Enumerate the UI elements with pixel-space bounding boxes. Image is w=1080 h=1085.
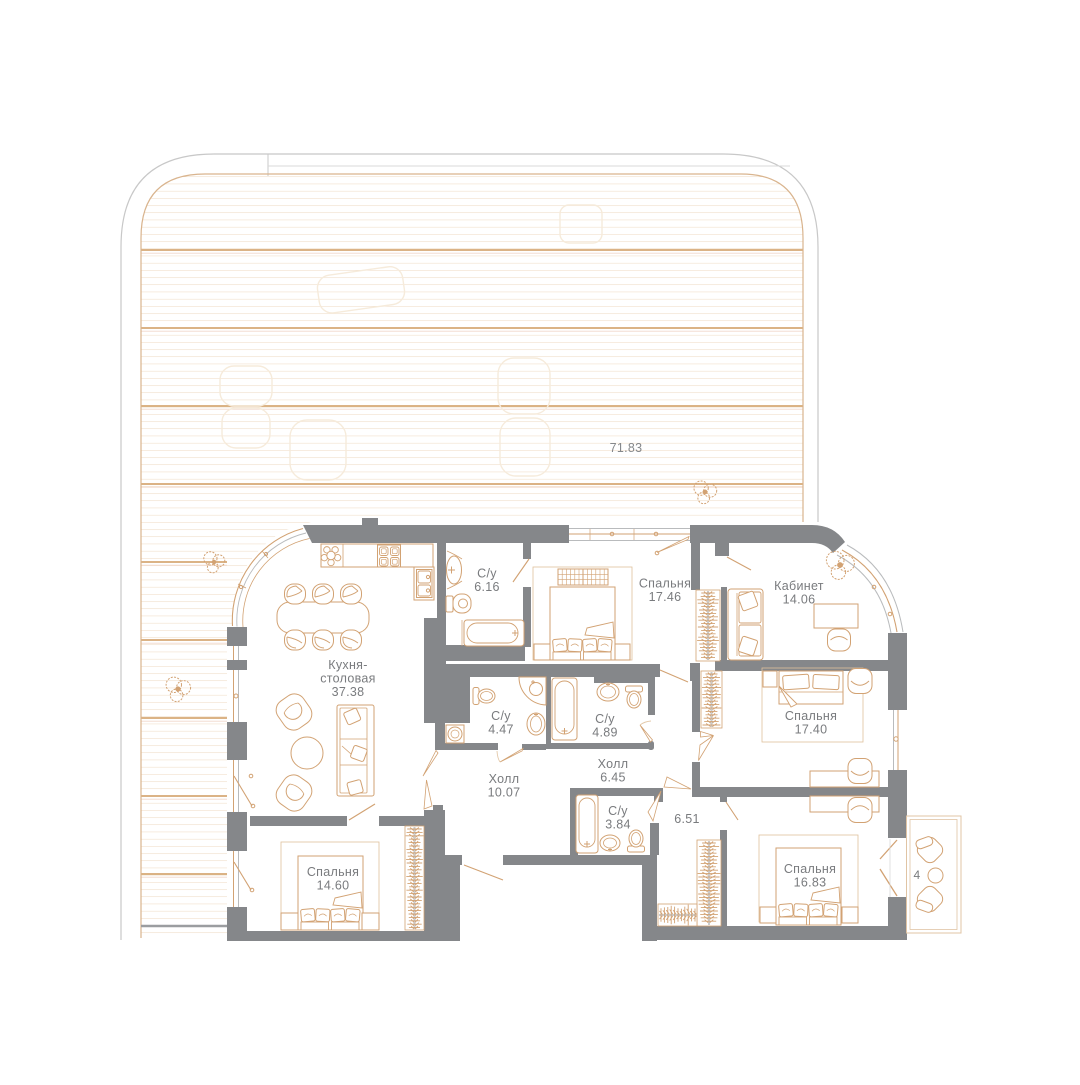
svg-text:Холл: Холл — [598, 757, 629, 771]
svg-text:Спальня: Спальня — [307, 865, 359, 879]
svg-text:10.07: 10.07 — [488, 786, 521, 800]
svg-text:4.89: 4.89 — [592, 726, 618, 740]
svg-text:столовая: столовая — [320, 672, 376, 686]
svg-text:37.38: 37.38 — [332, 685, 365, 699]
svg-text:Спальня: Спальня — [784, 862, 836, 876]
svg-text:Кабинет: Кабинет — [774, 579, 824, 593]
svg-text:Холл: Холл — [489, 772, 520, 786]
svg-text:4.47: 4.47 — [488, 723, 514, 737]
svg-text:С/у: С/у — [608, 804, 628, 818]
svg-text:6.51: 6.51 — [674, 812, 700, 826]
svg-text:16.83: 16.83 — [794, 876, 827, 890]
svg-text:4: 4 — [914, 868, 921, 882]
svg-text:Спальня: Спальня — [639, 577, 691, 591]
svg-text:17.40: 17.40 — [795, 723, 828, 737]
svg-text:14.60: 14.60 — [317, 879, 350, 893]
svg-text:Кухня-: Кухня- — [328, 658, 367, 672]
svg-text:3.84: 3.84 — [605, 818, 631, 832]
svg-text:17.46: 17.46 — [649, 590, 682, 604]
svg-text:71.83: 71.83 — [610, 441, 643, 455]
svg-text:С/у: С/у — [595, 712, 615, 726]
svg-text:С/у: С/у — [491, 709, 511, 723]
svg-text:6.16: 6.16 — [474, 580, 500, 594]
svg-text:14.06: 14.06 — [783, 593, 816, 607]
svg-text:6.45: 6.45 — [600, 771, 626, 785]
svg-text:Спальня: Спальня — [785, 709, 837, 723]
svg-text:С/у: С/у — [477, 567, 497, 581]
